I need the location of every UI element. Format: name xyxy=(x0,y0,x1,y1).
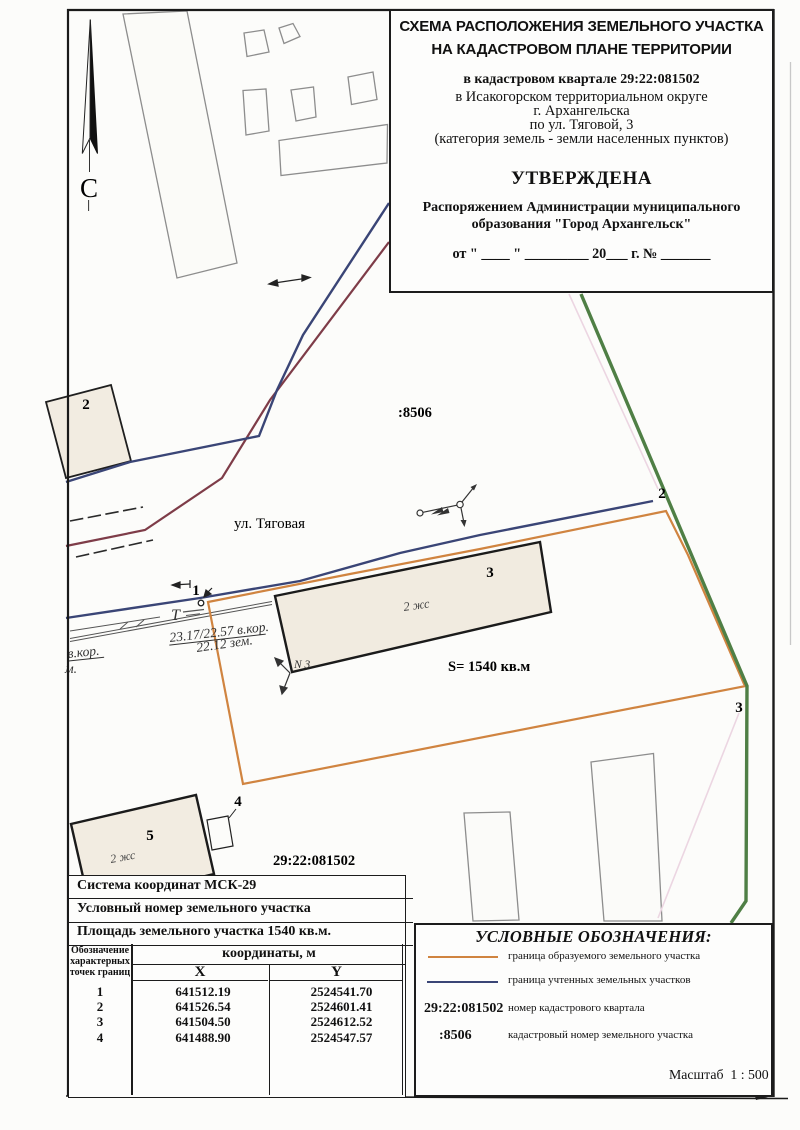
svg-text:1: 1 xyxy=(192,583,200,599)
svg-text:м.: м. xyxy=(64,661,77,676)
svg-text:С: С xyxy=(80,173,98,203)
svg-text:2: 2 xyxy=(658,486,666,502)
svg-text:ул. Тяговая: ул. Тяговая xyxy=(234,516,305,532)
svg-text:3: 3 xyxy=(486,565,494,581)
svg-text:4: 4 xyxy=(234,794,242,810)
svg-text:5: 5 xyxy=(146,828,154,844)
svg-text:29:22:081502: 29:22:081502 xyxy=(273,853,355,869)
svg-text:Т: Т xyxy=(171,607,181,624)
svg-text:3: 3 xyxy=(735,700,743,716)
svg-text:S= 1540 кв.м: S= 1540 кв.м xyxy=(448,659,530,675)
svg-text:N 3: N 3 xyxy=(293,659,311,671)
svg-text::8506: :8506 xyxy=(398,405,432,421)
svg-text:2: 2 xyxy=(82,397,90,413)
